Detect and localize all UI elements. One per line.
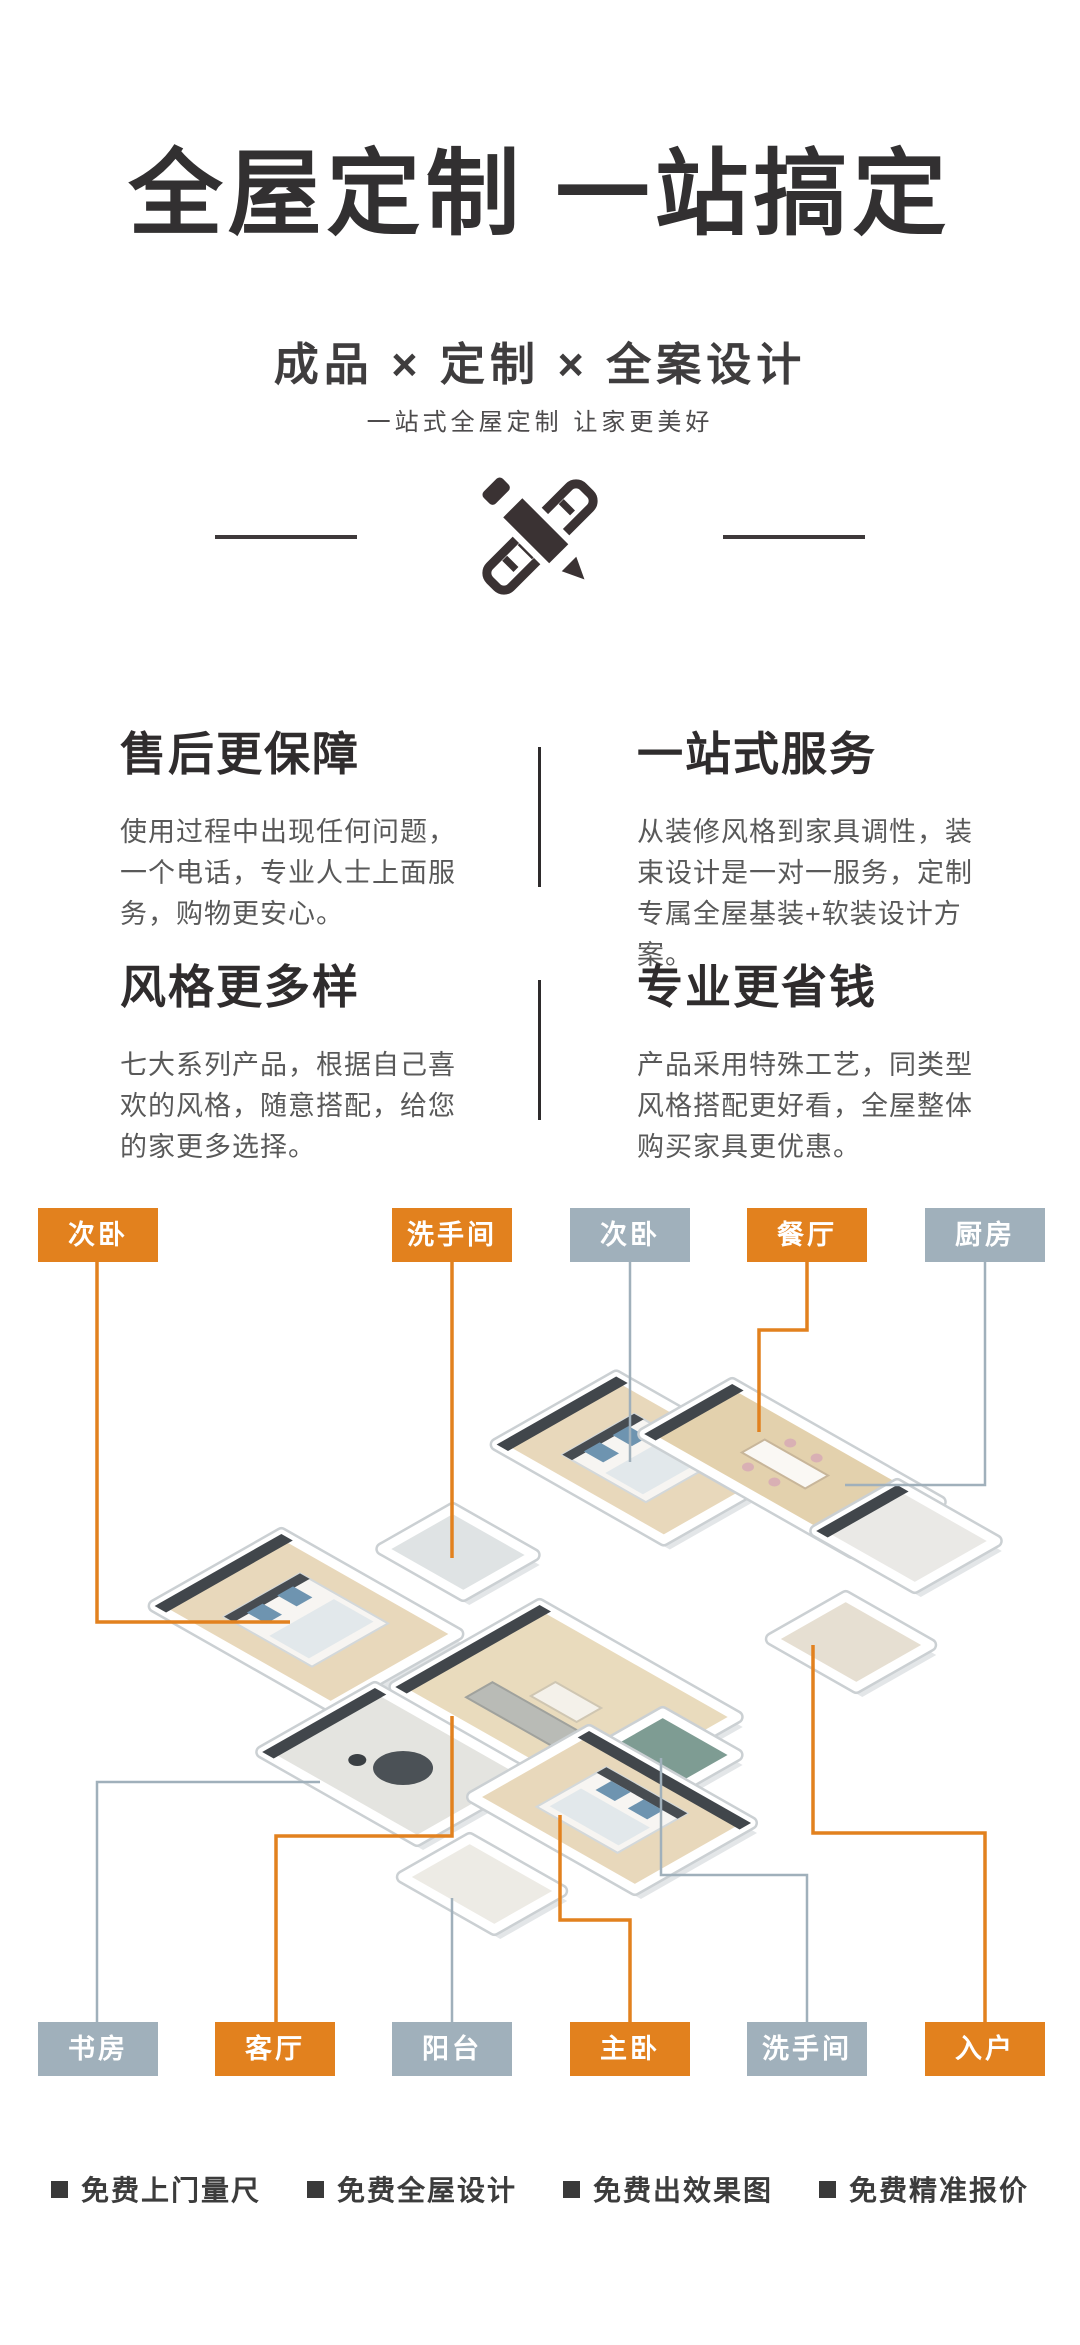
room-label-bottom-主卧: 主卧: [570, 2022, 690, 2076]
footer-item-quote: 免费精准报价: [819, 2169, 1029, 2209]
feature-title-styles: 风格更多样: [120, 951, 360, 1017]
feature-column-divider-bottom: [538, 980, 541, 1120]
room-label-top-次卧: 次卧: [38, 1208, 158, 1262]
divider-line-left: [215, 535, 357, 539]
room-label-bottom-阳台: 阳台: [392, 2022, 512, 2076]
room-label-bottom-洗手间: 洗手间: [747, 2022, 867, 2076]
footer-text-render: 免费出效果图: [593, 2169, 773, 2209]
feature-body-aftersales: 使用过程中出现任何问题，一个电话，专业人士上面服务，购物更安心。: [120, 812, 480, 935]
footer-item-measure: 免费上门量尺: [51, 2169, 261, 2209]
room-dining-chair: [742, 1463, 754, 1472]
square-bullet-icon: [819, 2181, 836, 2198]
feature-title-onestop: 一站式服务: [637, 718, 877, 784]
floorplan-section: 次卧洗手间次卧餐厅厨房书房客厅阳台主卧洗手间入户: [0, 1190, 1080, 2090]
page-title: 全屋定制 一站搞定: [0, 118, 1080, 254]
room-label-top-次卧: 次卧: [570, 1208, 690, 1262]
room-label-bottom-书房: 书房: [38, 2022, 158, 2076]
room-study-round-rug: [373, 1751, 433, 1785]
footer-services: 免费上门量尺 免费全屋设计 免费出效果图 免费精准报价: [0, 2164, 1080, 2214]
line-kitchen-top: [845, 1262, 985, 1485]
room-label-top-餐厅: 餐厅: [747, 1208, 867, 1262]
square-bullet-icon: [563, 2181, 580, 2198]
square-bullet-icon: [51, 2181, 68, 2198]
room-dining-chair: [768, 1478, 780, 1487]
feature-body-savings: 产品采用特殊工艺，同类型风格搭配更好看，全屋整体购买家具更优惠。: [637, 1045, 997, 1168]
room-dining-chair: [811, 1454, 823, 1463]
footer-text-quote: 免费精准报价: [849, 2169, 1029, 2209]
footer-text-design: 免费全屋设计: [337, 2169, 517, 2209]
page-tagline: 一站式全屋定制 让家更美好: [0, 402, 1080, 437]
room-bathroom-1-floor: [382, 1509, 533, 1595]
room-dining-chair: [784, 1439, 796, 1448]
feature-body-styles: 七大系列产品，根据自己喜欢的风格，随意搭配，给您的家更多选择。: [120, 1045, 480, 1168]
pencil-ruler-icon: [465, 455, 615, 615]
divider-line-right: [723, 535, 865, 539]
footer-item-design: 免费全屋设计: [307, 2169, 517, 2209]
page-subtitle: 成品 × 定制 × 全案设计: [0, 328, 1080, 393]
room-entry-floor: [772, 1597, 930, 1687]
room-label-bottom-入户: 入户: [925, 2022, 1045, 2076]
line-entry-bottom: [813, 1645, 985, 2022]
feature-column-divider-top: [538, 747, 541, 887]
feature-title-savings: 专业更省钱: [637, 951, 877, 1017]
footer-item-render: 免费出效果图: [563, 2169, 773, 2209]
room-label-top-洗手间: 洗手间: [392, 1208, 512, 1262]
square-bullet-icon: [307, 2181, 324, 2198]
promo-page: { "hero": { "title": "全屋定制 一站搞定", "subti…: [0, 0, 1080, 2345]
footer-text-measure: 免费上门量尺: [81, 2169, 261, 2209]
room-study-chair: [348, 1754, 366, 1766]
room-label-bottom-客厅: 客厅: [215, 2022, 335, 2076]
feature-title-aftersales: 售后更保障: [120, 718, 360, 784]
line-study-bottom: [97, 1782, 320, 2022]
floorplan-illustration: [0, 1190, 1080, 2090]
room-label-top-厨房: 厨房: [925, 1208, 1045, 1262]
